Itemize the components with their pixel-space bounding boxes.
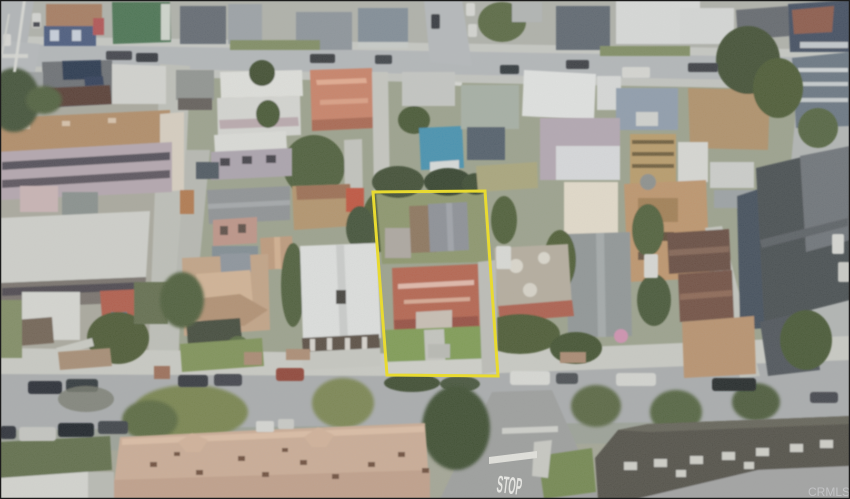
svg-text:CRMLS: CRMLS [808,485,850,499]
